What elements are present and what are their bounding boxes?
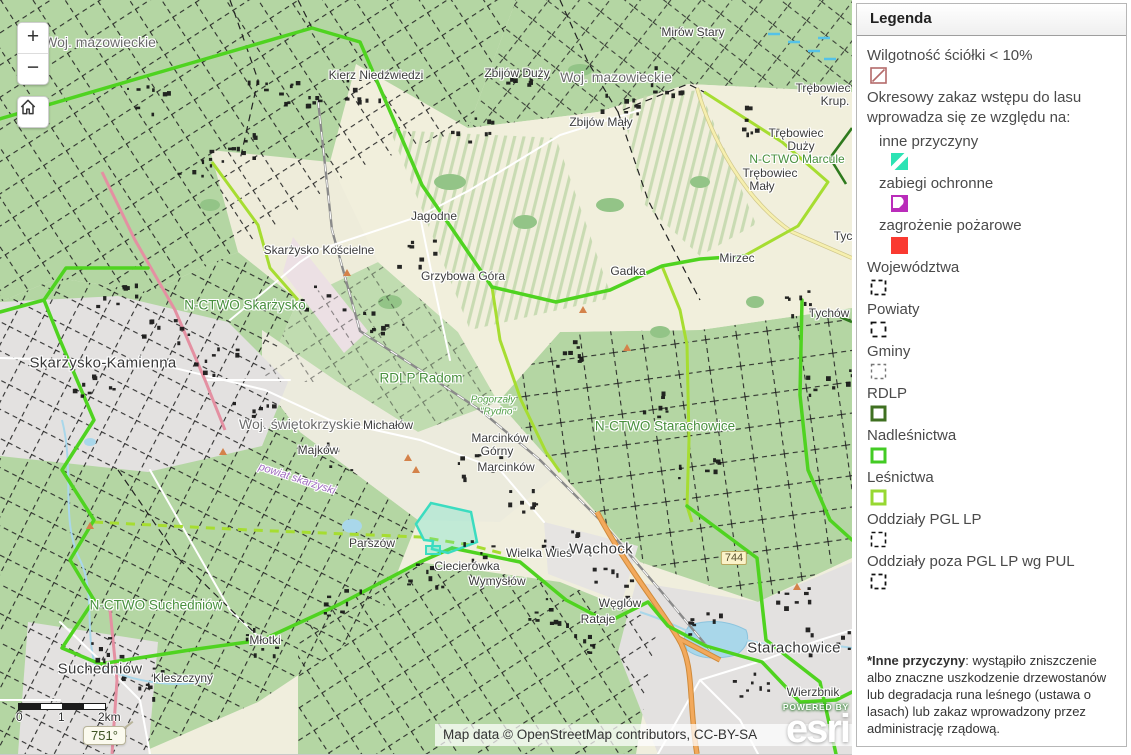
legend-swatch-outline [870,447,887,464]
home-button[interactable] [17,96,49,128]
legend-item-label: zagrożenie pożarowe [867,216,1116,236]
legend-title: Legenda [857,4,1126,36]
legend-item-label: Województwa [867,258,1116,278]
legend-item-label: Gminy [867,342,1116,362]
zoom-controls: + − [17,22,49,85]
legend-item: Wilgotność ściółki < 10% [867,46,1116,84]
legend-swatch-corner [891,195,908,212]
legend-swatch-outline [870,405,887,422]
legend-swatch-dashed [870,279,887,296]
legend-footnote: *Inne przyczyny: wystąpiło zniszczenie a… [867,652,1116,737]
home-icon [18,97,38,117]
legend-swatch-fill [891,237,908,254]
legend-item-label: Nadleśnictwa [867,426,1116,446]
legend-swatch-diag-line [870,67,887,84]
legend-item: Oddziały PGL LP [867,510,1116,548]
legend-swatch-stripe [891,153,908,170]
zoom-out-button[interactable]: − [18,53,48,84]
zoom-in-button[interactable]: + [18,23,48,53]
map-canvas[interactable] [0,0,852,754]
attribution: Map data © OpenStreetMap contributors, C… [435,724,852,746]
legend-item: Gminy [867,342,1116,380]
legend-item: zagrożenie pożarowe [867,216,1116,254]
legend-item: Województwa [867,258,1116,296]
legend-item-label: Powiaty [867,300,1116,320]
legend-panel: Legenda Wilgotność ściółki < 10%Okresowy… [856,3,1127,747]
legend-item-label: RDLP [867,384,1116,404]
legend-item-label: Okresowy zakaz wstępu do lasu wprowadza … [867,88,1116,128]
legend-item-label: zabiegi ochronne [867,174,1116,194]
legend-item-label: Leśnictwa [867,468,1116,488]
legend-item-label: Oddziały PGL LP [867,510,1116,530]
legend-item: RDLP [867,384,1116,422]
legend-item-label: inne przyczyny [867,132,1116,152]
legend-item: Powiaty [867,300,1116,338]
legend-footnote-bold: *Inne przyczyny [867,653,965,668]
legend-item-label: Oddziały poza PGL LP wg PUL [867,552,1116,572]
legend-swatch-dashed [870,321,887,338]
legend-swatch-outline [870,489,887,506]
legend-swatch-dashed [870,363,887,380]
map[interactable]: Woj. mazowieckieMirów StaryKierz Niedźwi… [0,0,852,755]
legend-item: Nadleśnictwa [867,426,1116,464]
legend-items: Wilgotność ściółki < 10%Okresowy zakaz w… [867,46,1116,590]
legend-item: Leśnictwa [867,468,1116,506]
legend-item: Okresowy zakaz wstępu do lasu wprowadza … [867,88,1116,128]
legend-item: Oddziały poza PGL LP wg PUL [867,552,1116,590]
legend-swatch-dashed [870,573,887,590]
legend-swatch-dashed [870,531,887,548]
legend-item: zabiegi ochronne [867,174,1116,212]
legend-item-label: Wilgotność ściółki < 10% [867,46,1116,66]
legend-item: inne przyczyny [867,132,1116,170]
